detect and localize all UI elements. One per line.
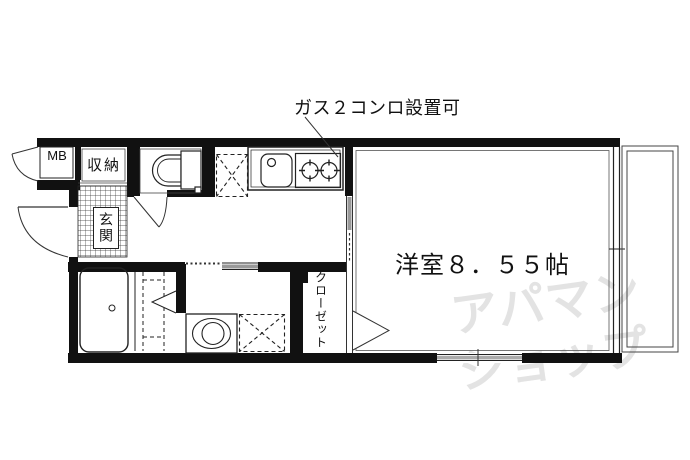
closet-label-box: クローゼット — [305, 263, 337, 357]
washroom-sliding-door — [186, 263, 258, 270]
front-door-swing — [18, 207, 68, 257]
closet-door-swing — [353, 311, 389, 350]
gas-stove-icon — [296, 154, 341, 188]
meter-box-label: MB — [40, 149, 74, 179]
bathtub-icon — [80, 268, 128, 352]
floorplan-canvas: アパマン ショップ — [0, 0, 690, 460]
bath-door — [135, 272, 176, 351]
toilet-icon — [152, 151, 201, 193]
laundry-space-icon — [240, 315, 285, 352]
gas-stove-note: ガス２コンロ設置可 — [294, 94, 461, 120]
gas-note-leader-line — [305, 117, 338, 157]
refrigerator-space-icon — [217, 155, 248, 197]
balcony-outline — [622, 146, 678, 352]
washing-machine-icon — [186, 314, 237, 353]
toilet-door-swing — [134, 197, 167, 227]
entrance-label-box: 玄関 — [93, 207, 119, 249]
kitchen-sink-icon — [261, 154, 292, 187]
closet-label: クローゼット — [313, 271, 330, 349]
bottom-window — [437, 349, 522, 366]
storage-label: 収納 — [80, 154, 128, 175]
balcony-window — [609, 147, 625, 353]
entrance-label: 玄関 — [96, 212, 116, 244]
meter-box-door-arc — [12, 147, 38, 181]
room-sliding-door — [347, 196, 353, 353]
main-room-label: 洋室８．５５帖 — [360, 245, 605, 280]
